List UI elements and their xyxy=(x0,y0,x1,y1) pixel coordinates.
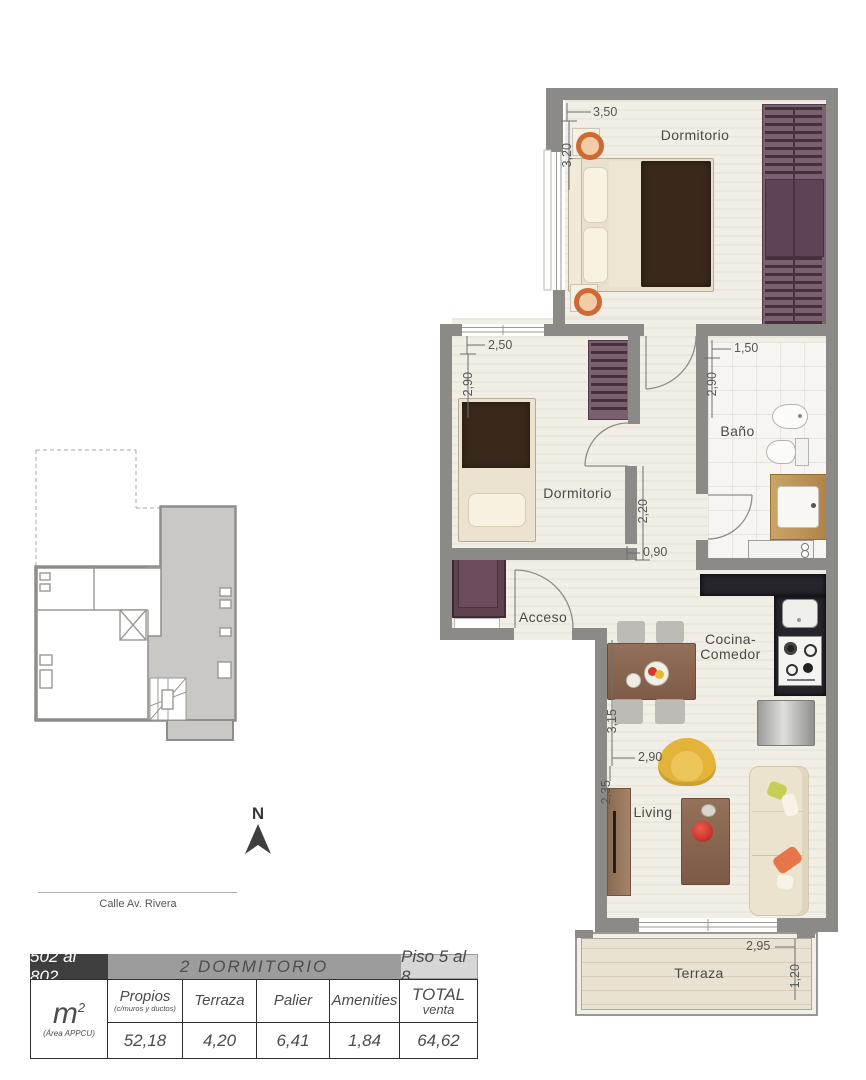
dining-chair xyxy=(617,621,645,643)
wall-segment xyxy=(440,628,514,640)
wardrobe-panel xyxy=(458,558,498,608)
room-label-cocina: Cocina- Comedor xyxy=(688,632,773,661)
value-total: 64,62 xyxy=(400,1023,478,1059)
col-label: Terraza xyxy=(194,993,244,1009)
pillow xyxy=(583,227,608,283)
unit-type-badge: 2 DORMITORIO xyxy=(108,954,400,979)
cushion xyxy=(776,874,794,891)
value-terraza: 4,20 xyxy=(183,1023,257,1059)
knob xyxy=(801,550,809,558)
pillow xyxy=(583,167,608,223)
sink-faucet xyxy=(811,503,816,508)
area-unit-cell: m2 (Área APPCU) xyxy=(30,979,108,1059)
cushion xyxy=(771,845,803,875)
north-label: N xyxy=(244,804,272,824)
toilet xyxy=(766,438,808,465)
room-label-acceso: Acceso xyxy=(502,610,584,625)
duvet xyxy=(641,161,711,287)
kitchen-counter-top xyxy=(700,574,826,596)
area-unit: m xyxy=(53,997,78,1030)
lamp xyxy=(574,288,602,316)
dim-label: 2,35 xyxy=(600,772,613,812)
fruit-bowl xyxy=(644,661,669,686)
lamp xyxy=(576,132,604,160)
window-sliding-living xyxy=(639,918,777,932)
wall-segment xyxy=(696,324,838,336)
toilet-bowl xyxy=(766,440,796,464)
fruit xyxy=(655,670,664,679)
value-propios: 52,18 xyxy=(108,1023,183,1059)
col-header-terraza: Terraza xyxy=(183,979,257,1023)
burner xyxy=(803,663,813,673)
keyplan-stair xyxy=(150,678,186,720)
armchair-seat xyxy=(671,751,703,781)
tv xyxy=(613,811,616,873)
dim-label: 2,50 xyxy=(488,339,512,352)
single-bed xyxy=(458,398,536,542)
dim-label: 2,90 xyxy=(462,364,475,404)
dim-label: 1,20 xyxy=(789,956,802,996)
dim-label: 0,90 xyxy=(643,546,667,559)
wardrobe-slats xyxy=(591,343,627,415)
wall-segment xyxy=(546,88,838,100)
summary-table: 502 al 802 2 DORMITORIO Piso 5 al 8 m2 (… xyxy=(30,954,478,1059)
col-header-propios: Propios (c/muros y ductos) xyxy=(108,979,183,1023)
pillow xyxy=(468,493,526,527)
street-line xyxy=(38,892,237,893)
keyplan-terrace xyxy=(167,720,233,740)
unit-range-badge: 502 al 802 xyxy=(30,954,108,979)
wall-segment xyxy=(696,336,708,494)
street-label: Calle Av. Rivera xyxy=(28,898,248,910)
floorplan-sheet: 3,50 3,20 2,50 2,90 1,50 2,90 2,20 0,90 … xyxy=(0,0,866,1080)
wall-segment xyxy=(777,918,838,932)
stove-knobs xyxy=(787,679,815,681)
floor-range-badge: Piso 5 al 8 xyxy=(400,954,478,979)
wall-segment xyxy=(826,88,838,932)
col-note: venta xyxy=(423,1003,455,1016)
col-header-total: TOTAL venta xyxy=(400,979,478,1023)
col-label: Propios xyxy=(120,989,171,1005)
wall-segment xyxy=(452,548,637,560)
burner xyxy=(804,644,817,657)
col-header-palier: Palier xyxy=(257,979,330,1023)
col-label: Amenities xyxy=(332,993,398,1009)
coffee-table xyxy=(681,798,730,885)
duvet xyxy=(462,402,530,468)
nightstand xyxy=(572,128,600,156)
wall-segment xyxy=(696,558,838,570)
bidet-faucet xyxy=(798,414,802,418)
dim-label: 3,15 xyxy=(606,701,619,741)
wall-segment xyxy=(628,336,640,424)
headboard xyxy=(569,159,582,289)
dining-chair xyxy=(655,699,685,724)
dim-label: 3,50 xyxy=(593,106,617,119)
dish xyxy=(701,804,716,817)
keyplan xyxy=(30,440,240,745)
cocina-line1: Cocina- xyxy=(688,632,773,647)
room-label-terraza: Terraza xyxy=(658,966,740,981)
north-arrow-icon xyxy=(240,822,276,858)
dim-label: 2,20 xyxy=(637,491,650,531)
wardrobe xyxy=(588,340,632,420)
room-label-bano: Baño xyxy=(705,424,770,439)
area-note: (Área APPCU) xyxy=(43,1029,95,1038)
wardrobe-divider xyxy=(793,107,795,327)
col-label: TOTAL xyxy=(412,986,465,1004)
sofa xyxy=(749,766,809,916)
cocina-line2: Comedor xyxy=(688,647,773,662)
dim-label: 1,50 xyxy=(734,342,758,355)
dim-label: 2,90 xyxy=(706,364,719,404)
wall-segment xyxy=(595,918,639,932)
area-unit-sup: 2 xyxy=(78,1000,85,1015)
double-bed xyxy=(568,158,714,292)
wall-segment xyxy=(544,324,644,336)
wardrobe xyxy=(762,104,827,332)
dim-label: 2,90 xyxy=(638,751,662,764)
vase xyxy=(692,821,713,842)
bed-sheet xyxy=(609,161,642,287)
bath-vanity xyxy=(770,474,828,540)
kitchen-sink xyxy=(782,599,818,628)
bidet xyxy=(772,404,808,429)
col-label: Palier xyxy=(274,993,312,1009)
toilet-tank xyxy=(795,438,809,466)
room-label-living: Living xyxy=(622,805,684,820)
nightstand xyxy=(570,284,598,312)
keyplan-patio-dashed xyxy=(36,450,160,572)
cushion xyxy=(781,793,800,818)
room-label-dormitorio1: Dormitorio xyxy=(630,128,760,143)
sink-drain xyxy=(797,618,801,622)
laundry-counter xyxy=(748,540,814,559)
room-label-dormitorio2: Dormitorio xyxy=(530,486,625,501)
value-amenities: 1,84 xyxy=(330,1023,400,1059)
dim-label: 3,20 xyxy=(561,135,574,175)
entry-wardrobe xyxy=(452,550,506,618)
dim-label: 2,95 xyxy=(746,940,770,953)
wall-segment xyxy=(440,324,452,640)
dining-chair xyxy=(656,621,684,643)
burner xyxy=(784,642,797,655)
fridge xyxy=(757,700,815,746)
plate xyxy=(626,673,641,688)
col-header-amenities: Amenities xyxy=(330,979,400,1023)
stove xyxy=(778,636,822,686)
value-palier: 6,41 xyxy=(257,1023,330,1059)
burner xyxy=(786,664,798,676)
col-note: (c/muros y ductos) xyxy=(114,1005,176,1013)
